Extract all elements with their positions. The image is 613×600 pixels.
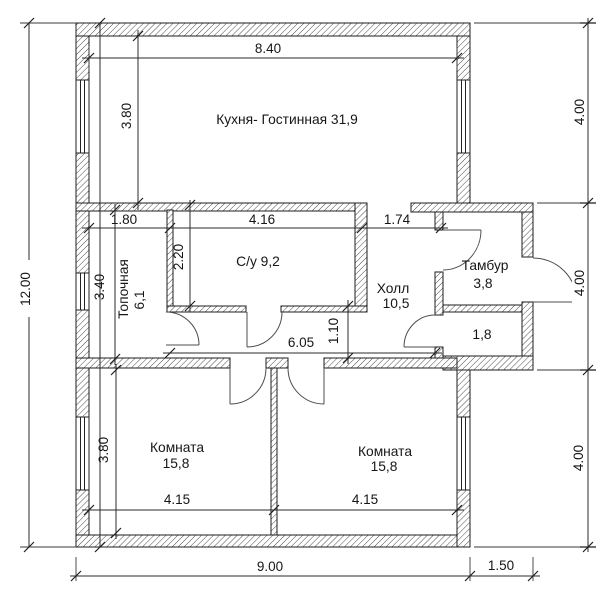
window-kitchen-left [76, 80, 89, 153]
room-kitchen-living-label: Кухня- Гостинная 31,9 [216, 112, 358, 127]
dim-bath-width: 4.16 [249, 212, 275, 227]
wall-exterior-right-lower [457, 370, 470, 417]
wall-exterior-right-lower [457, 490, 470, 547]
wall-bathroom-bottom [167, 306, 246, 312]
dim-corridor-length: 6.05 [288, 335, 314, 350]
dim-boiler-width: 1.80 [111, 212, 137, 227]
wall-kitchen-bottom [76, 203, 367, 211]
dim-right-bottom: 4.00 [571, 445, 586, 471]
dim-right-middle: 4.00 [572, 270, 587, 296]
room-bedroom-right-name: Комната [358, 444, 412, 459]
dim-bedroom-left-width: 4.15 [164, 492, 190, 507]
dim-bedroom-right-width: 4.15 [352, 492, 378, 507]
window-bedroom-right [457, 417, 470, 490]
dim-corridor-width: 1.10 [326, 318, 341, 344]
dim-right-top: 4.00 [572, 99, 587, 125]
floor-plan-svg: 8.40 12.00 4.00 4.00 4.00 9.00 1.50 3.80… [0, 0, 613, 600]
window-boiler [76, 273, 89, 310]
wall-exterior-top [76, 23, 470, 36]
dim-bedroom-depth: 3.80 [96, 437, 111, 463]
window-bedroom-left [76, 417, 89, 490]
dim-hall-top-width: 1.74 [384, 212, 411, 227]
wall-vestibule-right [522, 212, 533, 257]
dim-boiler-depth: 3.40 [92, 274, 107, 300]
dim-bath-depth: 2.20 [171, 244, 186, 270]
wall-corridor-bottom [76, 358, 230, 368]
room-storage-area: 1,8 [472, 327, 492, 342]
room-hall-name: Холл [377, 281, 410, 296]
wall-exterior-bottom [76, 535, 470, 547]
wall-vestibule-top [411, 203, 533, 212]
room-bedroom-right-area: 15,8 [371, 459, 398, 474]
dim-total-height: 12.00 [18, 272, 33, 306]
wall-bathroom-right [355, 203, 367, 306]
room-vestibule-area: 3,8 [473, 276, 493, 291]
floor-plan-page: 8.40 12.00 4.00 4.00 4.00 9.00 1.50 3.80… [0, 0, 613, 600]
dim-bottom-porch: 1.50 [488, 558, 514, 573]
window-kitchen-right [457, 80, 470, 153]
room-bathroom-label: С/у 9,2 [236, 254, 280, 269]
wall-corridor-bottom [266, 358, 288, 368]
room-bedroom-left-name: Комната [150, 440, 204, 455]
dim-top-width: 8.40 [255, 41, 281, 56]
wall-corridor-bottom [324, 358, 457, 368]
wall-vestibule-storage [443, 305, 522, 312]
wall-exterior-left [76, 153, 89, 273]
room-vestibule-name: Тамбур [462, 258, 509, 273]
wall-hall-vestibule [435, 272, 443, 315]
room-bedroom-left-area: 15,8 [163, 456, 190, 471]
wall-exterior-right-upper [457, 153, 470, 203]
room-boiler-name: Топочная [116, 259, 131, 319]
room-boiler-area: 6,1 [132, 290, 147, 309]
dim-kitchen-depth: 3.80 [119, 103, 134, 129]
dim-bottom-width: 9.00 [257, 559, 283, 574]
room-hall-area: 10,5 [383, 296, 410, 311]
wall-bathroom-bottom [281, 306, 367, 312]
